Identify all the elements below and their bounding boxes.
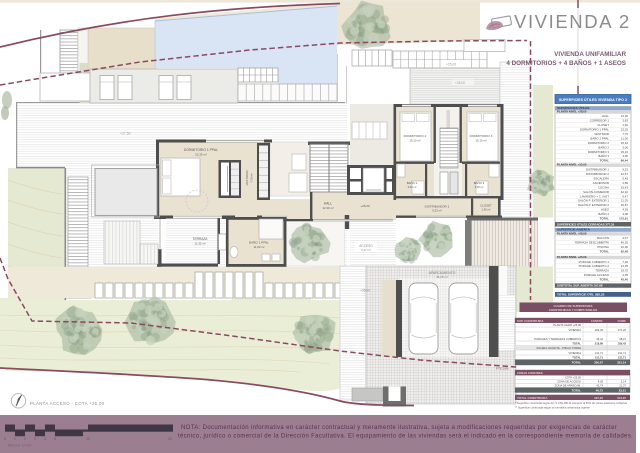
svg-text:42,10: 42,10 bbox=[621, 190, 629, 194]
svg-text:PORCHE CUBIERTO 2: PORCHE CUBIERTO 2 bbox=[579, 264, 610, 268]
svg-text:CORREDOR 1: CORREDOR 1 bbox=[590, 119, 610, 123]
svg-text:VESTIDOR: VESTIDOR bbox=[594, 132, 609, 136]
svg-text:BAÑO 2: BAÑO 2 bbox=[598, 144, 609, 149]
svg-text:VIVIENDA: VIVIENDA bbox=[568, 351, 581, 355]
svg-text:TERRAZA DESCUBIERTA: TERRAZA DESCUBIERTA bbox=[575, 241, 609, 245]
svg-text:131,71: 131,71 bbox=[595, 351, 604, 355]
svg-text:15,10 m²: 15,10 m² bbox=[409, 139, 420, 143]
svg-text:** Superficie construida según: ** Superficie construida según la normat… bbox=[515, 406, 590, 410]
svg-text:7,75: 7,75 bbox=[622, 132, 628, 136]
svg-text:PORCHE ACCESO: PORCHE ACCESO bbox=[584, 273, 610, 277]
svg-text:131,71: 131,71 bbox=[595, 356, 604, 360]
svg-text:SUP. CONSTRUIDA: SUP. CONSTRUIDA bbox=[517, 319, 544, 323]
svg-text:DORMITORIO 2: DORMITORIO 2 bbox=[588, 141, 610, 145]
svg-text:PTE 16%: PTE 16% bbox=[496, 367, 509, 371]
svg-text:1,60: 1,60 bbox=[622, 123, 628, 127]
svg-text:96,44: 96,44 bbox=[621, 159, 629, 163]
svg-text:14,35: 14,35 bbox=[621, 264, 629, 268]
svg-text:ASEO: ASEO bbox=[601, 208, 610, 212]
svg-text:7,75 m²: 7,75 m² bbox=[250, 173, 254, 182]
svg-text:PORCHE CUBIERTO 1: PORCHE CUBIERTO 1 bbox=[579, 260, 610, 264]
svg-text:TOTAL: TOTAL bbox=[572, 342, 581, 346]
svg-text:+27,50: +27,50 bbox=[120, 132, 131, 136]
svg-text:TERRAZA: TERRAZA bbox=[596, 269, 610, 273]
svg-text:3,06 m²: 3,06 m² bbox=[408, 185, 417, 189]
svg-text:2: 2 bbox=[24, 437, 26, 441]
svg-text:1,95 m²: 1,95 m² bbox=[482, 208, 491, 212]
svg-text:5,97 m²: 5,97 m² bbox=[361, 248, 371, 252]
svg-text:46,26 m²: 46,26 m² bbox=[436, 275, 448, 279]
svg-text:15,10 m²: 15,10 m² bbox=[475, 139, 486, 143]
svg-text:3,06: 3,06 bbox=[622, 145, 628, 149]
svg-text:45,40: 45,40 bbox=[621, 278, 629, 282]
svg-text:COCINA: COCINA bbox=[598, 185, 609, 189]
svg-text:12,67: 12,67 bbox=[621, 172, 629, 176]
svg-text:DISTRIBUIDOR 1: DISTRIBUIDOR 1 bbox=[586, 168, 610, 172]
svg-text:VESTIDOR: VESTIDOR bbox=[245, 170, 249, 186]
svg-text:12,30 m²: 12,30 m² bbox=[322, 206, 333, 210]
svg-text:PLANTA NIVEL +25,00: PLANTA NIVEL +25,00 bbox=[557, 255, 587, 259]
svg-text:PISCINA: PISCINA bbox=[597, 245, 609, 249]
svg-text:5,49: 5,49 bbox=[622, 176, 628, 180]
svg-text:SUPERFICIES ÚTILES VIVIENDA TI: SUPERFICIES ÚTILES VIVIENDA TIPO 2 bbox=[559, 97, 627, 102]
svg-text:SUBTOTAL SUP. ABIERTA 107,88: SUBTOTAL SUP. ABIERTA 107,88 bbox=[557, 283, 603, 287]
svg-text:9,23: 9,23 bbox=[622, 168, 628, 172]
svg-text:LAVADERO + C. INST: LAVADERO + C. INST bbox=[580, 194, 609, 198]
svg-text:CLOSET: CLOSET bbox=[480, 204, 492, 208]
svg-text:TOTAL: TOTAL bbox=[600, 250, 610, 254]
svg-text:COMP.: COMP. bbox=[618, 319, 627, 323]
svg-text:+25,00: +25,00 bbox=[446, 63, 456, 67]
svg-text:PLANTA NIVEL +25,00: PLANTA NIVEL +25,00 bbox=[557, 163, 587, 167]
svg-text:SUPERFICIES ÚTILES CERRADAS 2: SUPERFICIES ÚTILES CERRADAS 277,35 bbox=[557, 221, 615, 226]
svg-text:321,14: 321,14 bbox=[617, 361, 626, 365]
svg-text:DORMITORIO 2: DORMITORIO 2 bbox=[404, 134, 427, 138]
svg-text:21,35: 21,35 bbox=[621, 199, 629, 203]
svg-text:BAÑO 1 PPAL: BAÑO 1 PPAL bbox=[249, 240, 269, 245]
svg-text:PLANTA ACCESO - COTA +25,00: PLANTA ACCESO - COTA +25,00 bbox=[30, 401, 105, 406]
svg-text:CONSTRUIDAS Y COMPUTABLES: CONSTRUIDAS Y COMPUTABLES bbox=[549, 308, 598, 312]
svg-text:SALÓN P. EXTERIOR 1: SALÓN P. EXTERIOR 1 bbox=[578, 198, 609, 203]
svg-text:6,47: 6,47 bbox=[622, 194, 628, 198]
svg-text:131,71: 131,71 bbox=[618, 356, 627, 360]
svg-text:12,06: 12,06 bbox=[621, 245, 629, 249]
svg-text:TOTAL: TOTAL bbox=[600, 217, 610, 221]
svg-text:+28,00: +28,00 bbox=[455, 81, 465, 85]
svg-text:21,37: 21,37 bbox=[619, 383, 626, 387]
svg-text:350,57: 350,57 bbox=[594, 361, 603, 365]
svg-text:VIVIENDA 2: VIVIENDA 2 bbox=[514, 11, 631, 32]
svg-text:HALL: HALL bbox=[602, 114, 610, 118]
svg-text:PLANTA CERO +25,00: PLANTA CERO +25,00 bbox=[553, 323, 581, 327]
svg-text:SOLERA LEVANTE - P.BAJA TORRE: SOLERA LEVANTE - P.BAJA TORRE bbox=[536, 346, 581, 350]
svg-text:22,35: 22,35 bbox=[621, 128, 629, 132]
svg-text:4 DORMITORIOS + 4 BAÑOS + 1 A: 4 DORMITORIOS + 4 BAÑOS + 1 ASEOS bbox=[506, 58, 626, 67]
svg-text:4: 4 bbox=[44, 437, 46, 441]
svg-text:15,10: 15,10 bbox=[621, 141, 629, 145]
svg-text:SALÓN-COMEDOR: SALÓN-COMEDOR bbox=[583, 189, 609, 194]
svg-text:4,05: 4,05 bbox=[622, 273, 628, 277]
svg-text:PLANTA NIVEL +28,00: PLANTA NIVEL +28,00 bbox=[557, 110, 587, 114]
svg-text:11,00 m²: 11,00 m² bbox=[254, 245, 265, 249]
svg-text:3,83: 3,83 bbox=[622, 119, 628, 123]
svg-text:BAÑO 2: BAÑO 2 bbox=[407, 180, 418, 185]
svg-text:11,00: 11,00 bbox=[621, 136, 628, 140]
svg-text:NOTA: Documentación informativ: NOTA: Documentación informativa en carác… bbox=[181, 425, 617, 431]
svg-text:BALCÓN: BALCÓN bbox=[597, 235, 609, 240]
svg-text:DISTRIBUIDOR 2: DISTRIBUIDOR 2 bbox=[586, 172, 610, 176]
svg-text:TERRAZA: TERRAZA bbox=[193, 237, 209, 241]
svg-text:131,71: 131,71 bbox=[618, 351, 627, 355]
svg-text:182,45: 182,45 bbox=[595, 328, 604, 332]
svg-text:ZONAS COMUNES: ZONAS COMUNES bbox=[517, 371, 543, 375]
svg-text:TOTAL: TOTAL bbox=[572, 361, 582, 365]
svg-text:26,87: 26,87 bbox=[621, 203, 629, 207]
svg-text:172,91: 172,91 bbox=[619, 217, 628, 221]
svg-text:15,43: 15,43 bbox=[621, 185, 629, 189]
svg-text:10: 10 bbox=[86, 437, 90, 441]
svg-text:12,30: 12,30 bbox=[621, 114, 629, 118]
svg-text:TOTAL: TOTAL bbox=[572, 356, 581, 360]
svg-text:TOTAL SUPERFICIE ÚTIL: TOTAL SUPERFICIE ÚTIL 385,23 bbox=[557, 292, 605, 297]
svg-text:3,06: 3,06 bbox=[622, 154, 628, 158]
svg-text:* Superficie construida según: * Superficie construida según Art. 5 CTE… bbox=[515, 401, 628, 405]
svg-text:3,08: 3,08 bbox=[622, 212, 628, 216]
svg-text:1: 1 bbox=[14, 437, 16, 441]
svg-text:+28,00: +28,00 bbox=[360, 204, 370, 208]
svg-text:23,51: 23,51 bbox=[619, 388, 627, 392]
svg-text:TOTAL CONSTRUIDA: TOTAL CONSTRUIDA bbox=[517, 396, 548, 400]
svg-text:62,48: 62,48 bbox=[621, 250, 629, 254]
svg-text:5: 5 bbox=[54, 437, 56, 441]
svg-text:SALÓN P. EXTERIOR 2: SALÓN P. EXTERIOR 2 bbox=[578, 202, 609, 207]
svg-text:CONSTR.: CONSTR. bbox=[591, 319, 603, 323]
svg-text:COTA +25,00: COTA +25,00 bbox=[565, 375, 582, 379]
svg-text:18,21: 18,21 bbox=[619, 337, 626, 341]
svg-text:DORMITORIO 1 PPAL: DORMITORIO 1 PPAL bbox=[580, 128, 610, 132]
svg-text:4,93: 4,93 bbox=[622, 208, 628, 212]
svg-text:15,10: 15,10 bbox=[621, 150, 629, 154]
svg-text:20: 20 bbox=[168, 437, 172, 441]
svg-text:TOTAL: TOTAL bbox=[572, 388, 582, 392]
svg-text:+25,00: +25,00 bbox=[360, 289, 370, 293]
svg-text:DORMITORIO 1 PPAL: DORMITORIO 1 PPAL bbox=[184, 148, 218, 152]
svg-text:42,74: 42,74 bbox=[596, 383, 603, 387]
svg-text:2,89: 2,89 bbox=[622, 181, 628, 185]
svg-text:4,07: 4,07 bbox=[622, 236, 628, 240]
svg-text:4,28: 4,28 bbox=[598, 379, 604, 383]
svg-text:BAÑO 1 PPAL: BAÑO 1 PPAL bbox=[590, 135, 609, 140]
svg-text:9,23 m²: 9,23 m² bbox=[432, 209, 442, 213]
svg-text:2,14: 2,14 bbox=[621, 379, 627, 383]
svg-text:189,43: 189,43 bbox=[618, 342, 627, 346]
svg-text:Metros 1/100: Metros 1/100 bbox=[8, 443, 32, 448]
svg-text:BAÑO 3: BAÑO 3 bbox=[598, 153, 609, 158]
svg-text:12,32 m²: 12,32 m² bbox=[194, 242, 205, 246]
svg-text:HALL: HALL bbox=[324, 202, 332, 206]
svg-text:DORMITORIO 3: DORMITORIO 3 bbox=[470, 134, 493, 138]
svg-text:3,06 m²: 3,06 m² bbox=[475, 185, 484, 189]
svg-text:0: 0 bbox=[4, 437, 6, 441]
svg-text:22,35 m²: 22,35 m² bbox=[195, 153, 207, 157]
svg-text:344,65: 344,65 bbox=[617, 396, 626, 400]
svg-text:171,22: 171,22 bbox=[618, 328, 627, 332]
svg-text:TOTAL: TOTAL bbox=[600, 159, 610, 163]
svg-text:VIVIENDA: VIVIENDA bbox=[568, 328, 581, 332]
svg-text:ZONA DE ACCESO: ZONA DE ACCESO bbox=[557, 379, 581, 383]
svg-text:PORCHES Y TERRAZAS CUBIERTAS: PORCHES Y TERRAZAS CUBIERTAS bbox=[534, 337, 581, 341]
svg-text:3: 3 bbox=[34, 437, 36, 441]
svg-text:ASCENSOR: ASCENSOR bbox=[593, 181, 609, 185]
svg-text:ZONA DE APARCAM.: ZONA DE APARCAM. bbox=[555, 383, 581, 387]
svg-text:19,70: 19,70 bbox=[621, 269, 629, 273]
svg-text:BAÑO 4: BAÑO 4 bbox=[598, 211, 609, 216]
svg-text:7,30: 7,30 bbox=[622, 260, 628, 264]
svg-text:TOTAL: TOTAL bbox=[600, 278, 610, 282]
svg-text:218,86: 218,86 bbox=[595, 342, 604, 346]
svg-text:397,29: 397,29 bbox=[594, 396, 603, 400]
svg-text:PLANTA NIVEL +28,00: PLANTA NIVEL +28,00 bbox=[557, 231, 587, 235]
svg-text:36,41: 36,41 bbox=[596, 337, 603, 341]
svg-text:BAÑO 3: BAÑO 3 bbox=[474, 180, 485, 185]
svg-text:técnico, jurídico o comercial: técnico, jurídico o comercial de la Dire… bbox=[178, 433, 633, 439]
svg-text:46,72: 46,72 bbox=[596, 388, 604, 392]
svg-text:46,35: 46,35 bbox=[621, 241, 629, 245]
svg-text:VIVIENDA UNIFAMILIAR: VIVIENDA UNIFAMILIAR bbox=[554, 51, 626, 58]
svg-text:ESCALERA: ESCALERA bbox=[594, 176, 609, 180]
svg-text:CLOSET: CLOSET bbox=[597, 123, 609, 127]
svg-text:DORMITORIO 3: DORMITORIO 3 bbox=[588, 150, 610, 154]
